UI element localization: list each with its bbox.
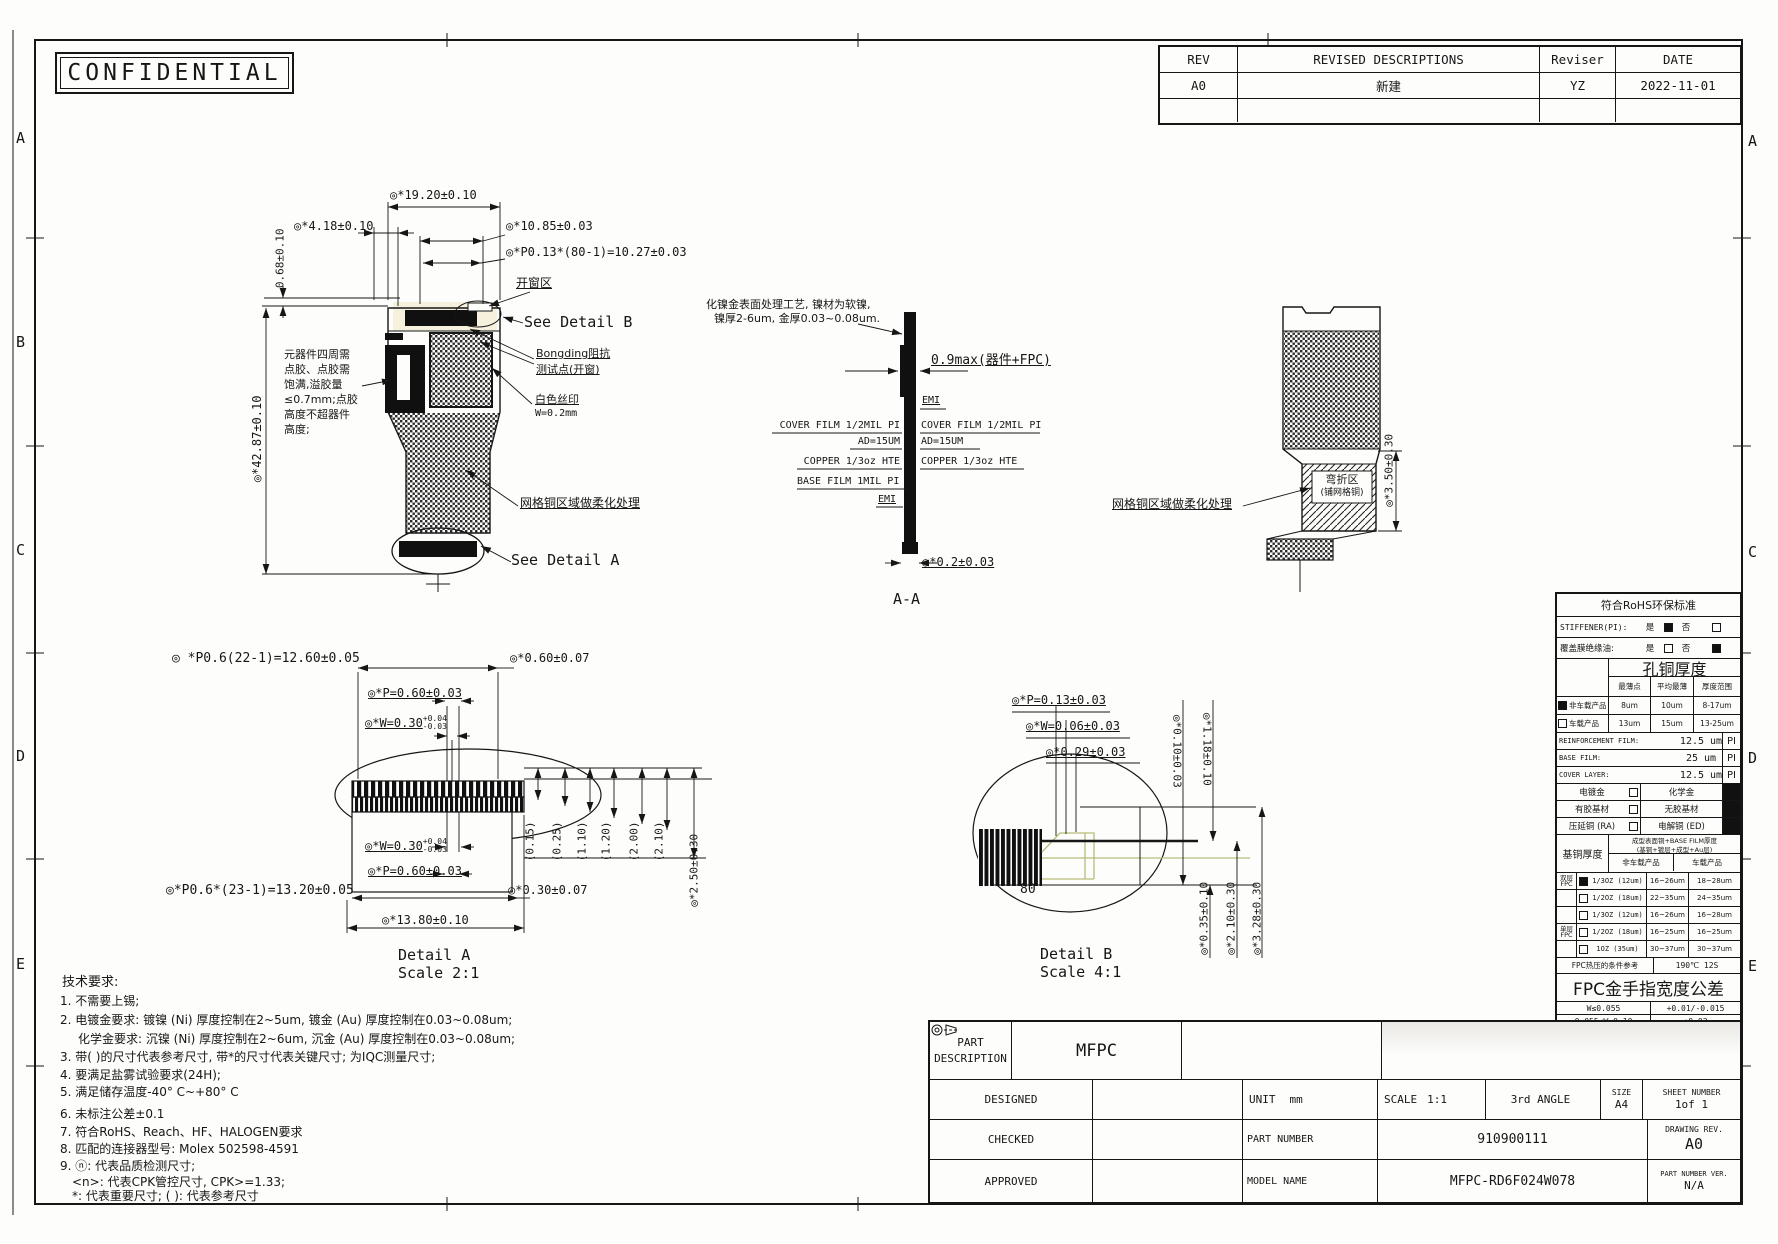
da-ref-dim-2: (0.25) [552,818,565,864]
db-dim-offset: ◎*0.29±0.03 [1046,746,1125,760]
revision-header-row: REV REVISED DESCRIPTIONS Reviser DATE [1160,47,1740,73]
dim-total-height: ◎*42.87±0.10 [251,384,265,494]
engineering-drawing-page: CONFIDENTIAL A B C D E A C D E REV REVIS… [0,0,1778,1244]
note-glue-line5: 高度不超器件 [284,409,350,422]
aa-label-adhesive-left: AD=15UM [848,436,900,448]
size-cell: SIZE A4 [1601,1080,1643,1119]
hole-row1-checkbox [1558,701,1567,710]
film3-material: PI [1722,767,1740,783]
revision-table: REV REVISED DESCRIPTIONS Reviser DATE A0… [1158,45,1742,125]
confidential-stamp: CONFIDENTIAL [55,52,294,94]
rohs-hole-row-2: 车载产品 13um 15um 13-25um [1557,715,1740,733]
da-dim-pitch22: ◎ *P0.6(22-1)=12.60±0.05 [172,652,360,667]
rohs-title-row: 符合RoHS环保标准 [1557,594,1740,617]
aa-label-emi-top: EMI [922,395,940,407]
checked-value [1093,1120,1243,1159]
opt1-right-label: 化学金 [1641,784,1722,800]
third-angle-label: 3rd ANGLE [1511,1093,1571,1106]
rev-col-header: REV [1160,47,1238,72]
base-copper-h2: (基铜+镀层+成型+Au层) [1609,845,1740,854]
label-bonding-test-2: 测试点(开窗) [536,364,600,377]
opt1-left-checkbox [1629,788,1638,797]
stiffener-yes-checkbox [1664,623,1673,632]
db-dim-b3: ◎*3.28±0.30 [1252,868,1265,968]
tech-note-6: 6. 未标注公差±0.1 [60,1108,164,1122]
side-label-mesh-soften: 网格铜区域做柔化处理 [1112,498,1232,512]
rohs-hole-copper-header: 孔铜厚度 最薄点 平均最薄 厚度范围 [1557,659,1740,697]
model-name-value: MFPC-RD6F024W078 [1378,1160,1648,1202]
aa-label-emi-bottom: EMI [878,494,896,506]
dim-left-offset: ◎*4.18±0.10 [294,220,373,234]
cu-row4-checkbox [1579,928,1588,937]
da-ref-dim-5: (2.00) [629,818,642,864]
rohs-finger-title-row: FPC金手指宽度公差 [1557,974,1740,1002]
da-ref-dim-3: (1.10) [577,818,590,864]
db-dim-b1: ◎*0.35±0.10 [1199,868,1212,968]
approved-label: APPROVED [930,1160,1093,1202]
cu-row-1: 双层FPC 1/3OZ (12um) 16~26um 18~28um [1557,873,1740,890]
rohs-spec-table: 符合RoHS环保标准 STIFFENER(PI): 是 否 覆盖膜绝缘油: 是 … [1555,592,1742,1056]
hotpress-value: 190℃ 12S [1654,958,1740,973]
side-dim-bend-height: ◎*3.50±0.30 [1384,420,1397,520]
reviser-value: YZ [1540,73,1616,98]
aa-label-copper-right: COPPER 1/3oz HTE [921,456,1017,468]
sheet-number-label: SHEET NUMBER [1663,1088,1721,1098]
aa-dim-max-thickness: 0.9max(器件+FPC) [931,354,1051,369]
rohs-option-row-3: 压延铜 (RA) 电解铜 (ED) [1557,818,1740,835]
film1-value: 12.5 um [1680,733,1722,749]
rohs-coverfilm-row: 覆盖膜绝缘油: 是 否 [1557,638,1740,659]
tech-note-2: 2. 电镀金要求: 镀镍 (Ni) 厚度控制在2~5um, 镀金 (Au) 厚度… [60,1014,512,1028]
part-description-value: MFPC [1012,1022,1182,1079]
finger-row-1: W≤0.055 +0.01/-0.015 [1557,1002,1740,1015]
desc-value: 新建 [1238,73,1540,98]
tech-note-1: 1. 不需要上锡; [60,995,139,1009]
base-col-auto: 车载产品 [1674,854,1740,871]
base-copper-h1: 成型表面铜+BASE FILM厚度 [1609,835,1740,845]
da-dim-pitch23: ◎*P0.6*(23-1)=13.20±0.05 [166,884,354,899]
rohs-film-row-2: BASE FILM: 25 um PI [1557,750,1740,767]
tech-notes-title: 技术要求: [62,976,118,991]
dim-total-width: ◎*19.20±0.10 [390,189,477,203]
part-number-ver-cell: PART NUMBER VER. N/A [1648,1160,1740,1202]
label-mesh-soften: 网格铜区域做柔化处理 [520,497,640,511]
rohs-option-row-1: 电镀金 化学金 [1557,784,1740,801]
aa-label-base-film: BASE FILM 1MIL PI [797,476,899,488]
rohs-option-row-2: 有胶基材 无胶基材 [1557,801,1740,818]
hole-row2-name: 车载产品 [1569,718,1599,729]
frame-letter-right-e: E [1748,957,1757,975]
aa-label-copper-left: COPPER 1/3oz HTE [797,456,900,468]
db-dim-v2: ◎*1.18±0.10 [1200,699,1213,799]
model-name-label: MODEL NAME [1243,1160,1378,1202]
rohs-film-row-3: COVER LAYER: 12.5 um PI [1557,767,1740,784]
db-dim-width: ◎*W=0.06±0.03 [1026,720,1120,734]
opt3-right-checkbox [1722,818,1740,834]
tech-note-5: 5. 满足储存温度-40° C~+80° C [60,1086,239,1100]
scale-value: 1:1 [1427,1093,1447,1106]
aa-surface-note-2: 镍厚2-6um, 金厚0.03~0.08um. [714,313,880,326]
part-number-ver-value: N/A [1684,1179,1704,1193]
tech-note-4: 4. 要满足盐雾试验要求(24H); [60,1069,221,1083]
film3-value: 12.5 um [1680,767,1722,783]
da-scale: Scale 2:1 [398,965,479,982]
rohs-hotpress-row: FPC热压的条件参考 190℃ 12S [1557,958,1740,974]
aa-label-cover-film-right: COVER FILM 1/2MIL PI [921,420,1041,432]
cu-row-3: 1/3OZ (12um) 16~26um 16~28um [1557,907,1740,924]
opt2-right-label: 无胶基材 [1641,801,1722,817]
rohs-film-row-1: REINFORCEMENT FILM: 12.5 um PI [1557,733,1740,750]
hole-col-avg: 平均最薄 [1651,677,1694,696]
tech-note-9: 9. ⓝ: 代表品质检测尺寸; [60,1160,195,1174]
tech-note-3: 3. 带( )的尺寸代表参考尺寸, 带*的尺寸代表关键尺寸; 为IQC测量尺寸; [60,1051,435,1065]
opt3-right-label: 电解铜 (ED) [1641,818,1722,834]
aa-label-adhesive-right: AD=15UM [921,436,963,448]
rev-value: A0 [1160,73,1238,98]
note-glue-line3: 饱满,溢胶量 [284,379,343,392]
cu-row1-checkbox [1579,877,1588,886]
da-ref-dim-1: (0.15) [525,818,538,864]
confidential-text: CONFIDENTIAL [60,57,289,89]
frame-letter-left-b: B [16,333,25,351]
part-number-value: 910900111 [1378,1120,1648,1159]
hole-copper-title: 孔铜厚度 [1609,659,1740,677]
frame-letter-left-e: E [16,955,25,973]
note-glue-line1: 元器件四周需 [284,349,350,362]
dim-pad-span: ◎*10.85±0.03 [506,220,593,234]
frame-letter-left-a: A [16,129,25,147]
unit-label: UNIT [1249,1093,1276,1106]
projection-cell: 3rd ANGLE [1486,1080,1601,1119]
tech-note-7: 7. 符合RoHS、Reach、HF、HALOGEN要求 [60,1126,303,1140]
da-title: Detail A [398,947,470,964]
da-dim-total-width: ◎*13.80±0.10 [382,914,469,928]
side-label-bend-zone-1: 弯折区 [1314,474,1370,487]
db-pin-number: 80 [1020,883,1036,898]
da-ref-dim-6: (2.10) [654,818,667,864]
cu-row3-checkbox [1579,911,1588,920]
dim-top-step: 0.68±0.10 [275,213,288,303]
hole-col-range: 厚度范围 [1694,677,1740,696]
designed-label: DESIGNED [930,1080,1093,1119]
note-glue-line6: 高度; [284,424,310,437]
da-dim-pitch-2: ◎*P=0.60±0.03 [368,865,462,879]
rohs-base-copper-header: 基铜厚度 成型表面铜+BASE FILM厚度 (基铜+镀层+成型+Au层) 非车… [1557,835,1740,873]
film1-material: PI [1722,733,1740,749]
label-bonding-test-1: Bongding阻抗 [536,348,610,361]
desc-col-header: REVISED DESCRIPTIONS [1238,47,1540,72]
da-dim-end-gap: ◎*0.60±0.07 [510,652,589,666]
tech-note-8: 8. 匹配的连接器型号: Molex 502598-4591 [60,1143,299,1157]
opt2-right-checkbox [1722,801,1740,817]
yes-label: 是 [1643,617,1657,637]
coverfilm-yes-checkbox [1664,644,1673,653]
db-dim-b2: ◎*2.10±0.30 [1226,868,1239,968]
aa-label-cover-film-left: COVER FILM 1/2MIL PI [772,420,900,432]
film2-material: PI [1722,750,1740,766]
unit-value: mm [1290,1093,1303,1106]
drawing-rev-value: A0 [1685,1135,1703,1154]
da-dim-end-gap-2: ◎*0.30±0.07 [508,884,587,898]
cu-row1-spec: 1/3OZ (12um) [1589,873,1647,889]
sheet-cell: SHEET NUMBER 1of 1 [1643,1080,1740,1119]
opt2-left-label: 有胶基材 [1557,801,1627,817]
note-glue-line4: ≤0.7mm;点胶 [284,394,358,407]
label-silkscreen-1: 白色丝印 [535,394,579,407]
hotpress-label: FPC热压的条件参考 [1557,958,1654,973]
frame-letter-right-c: C [1748,543,1757,561]
hole-col-min: 最薄点 [1609,677,1651,696]
rohs-stiffener-row: STIFFENER(PI): 是 否 [1557,617,1740,638]
da-dim-depth: ◎*2.50±0.30 [689,824,702,916]
stiffener-label: STIFFENER(PI): [1557,617,1643,637]
cu-row-2: 1/2OZ (18um) 22~35um 24~35um [1557,890,1740,907]
label-see-detail-a: See Detail A [511,552,619,569]
cu-row-5: 1OZ (35um) 30~37um 30~37um [1557,941,1740,958]
da-dim-finger-width-2: ◎*W=0.30+0.04-0.03 [365,838,447,855]
title-block: PART DESCRIPTION MFPC DESIGNED UNITmm SC… [928,1020,1742,1204]
aa-surface-note-1: 化镍金表面处理工艺, 镍材为软镍, [706,299,871,312]
sheet-number-value: 1of 1 [1675,1098,1708,1112]
cu-row-4: 单层FPC 1/2OZ (18um) 16~25um 16~25um [1557,924,1740,941]
finger-tolerance-title: FPC金手指宽度公差 [1557,974,1740,1001]
no-label: 否 [1679,617,1693,637]
revision-empty-row [1160,99,1740,122]
tech-note-9c: *: 代表重要尺寸; ( ): 代表参考尺寸 [72,1190,259,1204]
cu-row2-checkbox [1579,894,1588,903]
date-value: 2022-11-01 [1616,73,1740,98]
tech-note-2b: 化学金要求: 沉镍 (Ni) 厚度控制在2~6um, 沉金 (Au) 厚度控制在… [78,1033,515,1047]
aa-section-title: A-A [893,591,920,608]
drawing-rev-label: DRAWING REV. [1665,1125,1723,1135]
size-value: A4 [1615,1098,1628,1112]
opt2-left-checkbox [1629,805,1638,814]
part-number-ver-label: PART NUMBER VER. [1660,1170,1727,1179]
cu-row4-group: 单层FPC [1557,924,1577,940]
frame-letter-left-c: C [16,541,25,559]
opt1-right-checkbox [1722,784,1740,800]
stiffener-no-checkbox [1712,623,1721,632]
opt3-left-checkbox [1629,822,1638,831]
coverfilm-label: 覆盖膜绝缘油: [1557,638,1643,658]
db-dim-pitch: ◎*P=0.13±0.03 [1012,694,1106,708]
da-dim-finger-width: ◎*W=0.30+0.04-0.03 [365,715,447,732]
scale-cell: SCALE1:1 [1378,1080,1486,1119]
db-title: Detail B [1040,946,1112,963]
aa-dim-thickness: ◎*0.2±0.03 [922,556,994,570]
hole-row1-name: 非车载产品 [1569,700,1607,711]
da-dim-pitch: ◎*P=0.60±0.03 [368,687,462,701]
coverfilm-no-checkbox [1712,644,1721,653]
film3-label: COVER LAYER: [1557,767,1680,783]
tech-note-9b: <n>: 代表CPK管控尺寸, CPK>=1.33; [72,1176,285,1190]
film2-value: 25 um [1680,750,1722,766]
frame-letter-right-d: D [1748,749,1757,767]
film2-label: BASE FILM: [1557,750,1680,766]
label-see-detail-b: See Detail B [524,314,632,331]
part-number-label: PART NUMBER [1243,1120,1378,1159]
scale-label: SCALE [1384,1093,1417,1106]
drawing-rev-cell: DRAWING REV. A0 [1648,1120,1740,1159]
revision-row-a0: A0 新建 YZ 2022-11-01 [1160,73,1740,99]
label-silkscreen-2: W=0.2mm [535,408,577,420]
unit-cell: UNITmm [1243,1080,1378,1119]
base-col-nonauto: 非车载产品 [1609,854,1674,871]
film1-label: REINFORCEMENT FILM: [1557,733,1680,749]
rohs-hole-row-1: 非车载产品 8um 10um 8-17um [1557,697,1740,715]
frame-letter-left-d: D [16,747,25,765]
cu-row1-group: 双层FPC [1557,873,1577,889]
db-dim-v1: ◎*0.10±0.03 [1170,701,1183,801]
opt3-left-label: 压延铜 (RA) [1557,818,1627,834]
label-window-area: 开窗区 [516,277,552,291]
opt1-left-label: 电镀金 [1557,784,1627,800]
note-glue-line2: 点胶、点胶需 [284,364,350,377]
da-ref-dim-4: (1.20) [601,818,614,864]
cu-row5-checkbox [1579,945,1588,954]
approved-value [1093,1160,1243,1202]
frame-letter-right-a: A [1748,132,1757,150]
side-label-bend-zone-2: (铺网格铜) [1312,488,1372,498]
hole-row2-checkbox [1558,719,1567,728]
reviser-col-header: Reviser [1540,47,1616,72]
db-scale: Scale 4:1 [1040,964,1121,981]
size-label: SIZE [1612,1088,1631,1098]
rohs-title: 符合RoHS环保标准 [1557,594,1740,616]
designed-value [1093,1080,1243,1119]
dim-pitch-total: ◎*P0.13*(80-1)=10.27±0.03 [506,246,687,260]
base-copper-title: 基铜厚度 [1557,835,1609,872]
date-col-header: DATE [1616,47,1740,72]
checked-label: CHECKED [930,1120,1093,1159]
